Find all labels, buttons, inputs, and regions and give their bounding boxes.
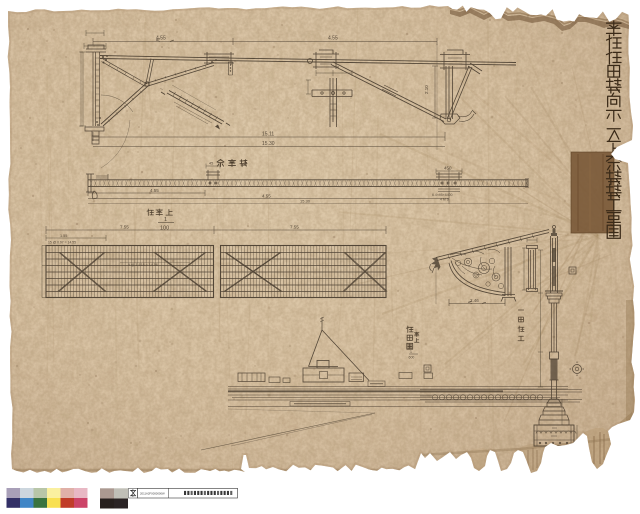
svg-text:4.55: 4.55 <box>262 194 271 199</box>
svg-text:7.55: 7.55 <box>290 225 299 230</box>
svg-text:4.55: 4.55 <box>328 36 338 42</box>
svg-text:45: 45 <box>209 162 213 166</box>
svg-text:2011A2F0000000W: 2011A2F0000000W <box>140 491 165 495</box>
svg-text:1: 1 <box>410 350 412 354</box>
svg-text:15.30: 15.30 <box>300 199 311 204</box>
svg-text:9 @ 1.618 = 14.56: 9 @ 1.618 = 14.56 <box>128 263 158 267</box>
svg-text:4.55: 4.55 <box>150 188 159 193</box>
svg-text:4 M 6: 4 M 6 <box>440 198 449 202</box>
svg-text:600: 600 <box>409 356 415 360</box>
svg-text:15.11: 15.11 <box>262 132 274 138</box>
svg-text:15.30: 15.30 <box>262 141 275 147</box>
svg-text:7.55: 7.55 <box>120 225 129 230</box>
svg-text:6.4×95×6400: 6.4×95×6400 <box>432 193 453 197</box>
svg-text:450: 450 <box>444 166 452 171</box>
svg-text:1: 1 <box>164 217 167 223</box>
svg-text:4.55: 4.55 <box>156 36 166 42</box>
svg-text:100: 100 <box>160 226 169 232</box>
svg-text:15 @ 0.97 = 14.55: 15 @ 0.97 = 14.55 <box>48 241 76 245</box>
svg-text:1.55: 1.55 <box>60 234 67 238</box>
svg-text:2.46: 2.46 <box>470 298 479 303</box>
svg-text:2.10: 2.10 <box>424 85 429 94</box>
